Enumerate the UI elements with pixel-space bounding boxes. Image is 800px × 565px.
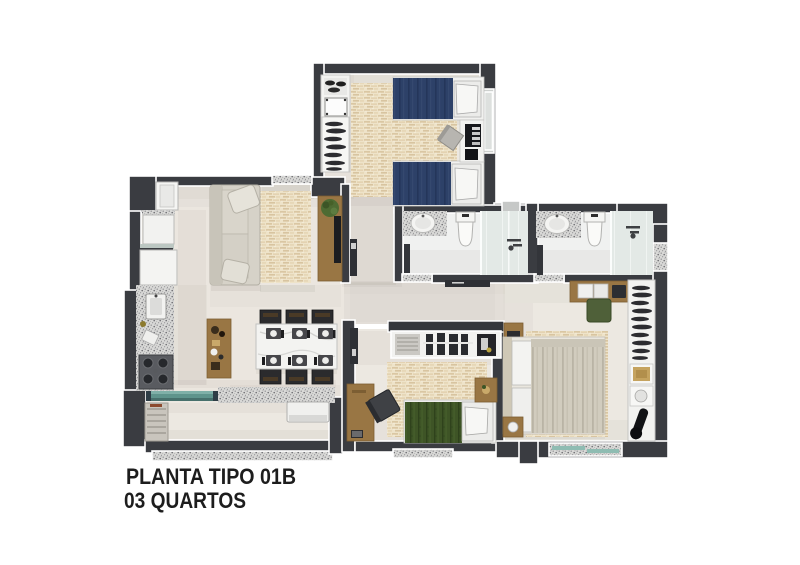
- svg-text:PLANTA TIPO 01B: PLANTA TIPO 01B: [126, 464, 296, 489]
- svg-text:03 QUARTOS: 03 QUARTOS: [124, 488, 246, 513]
